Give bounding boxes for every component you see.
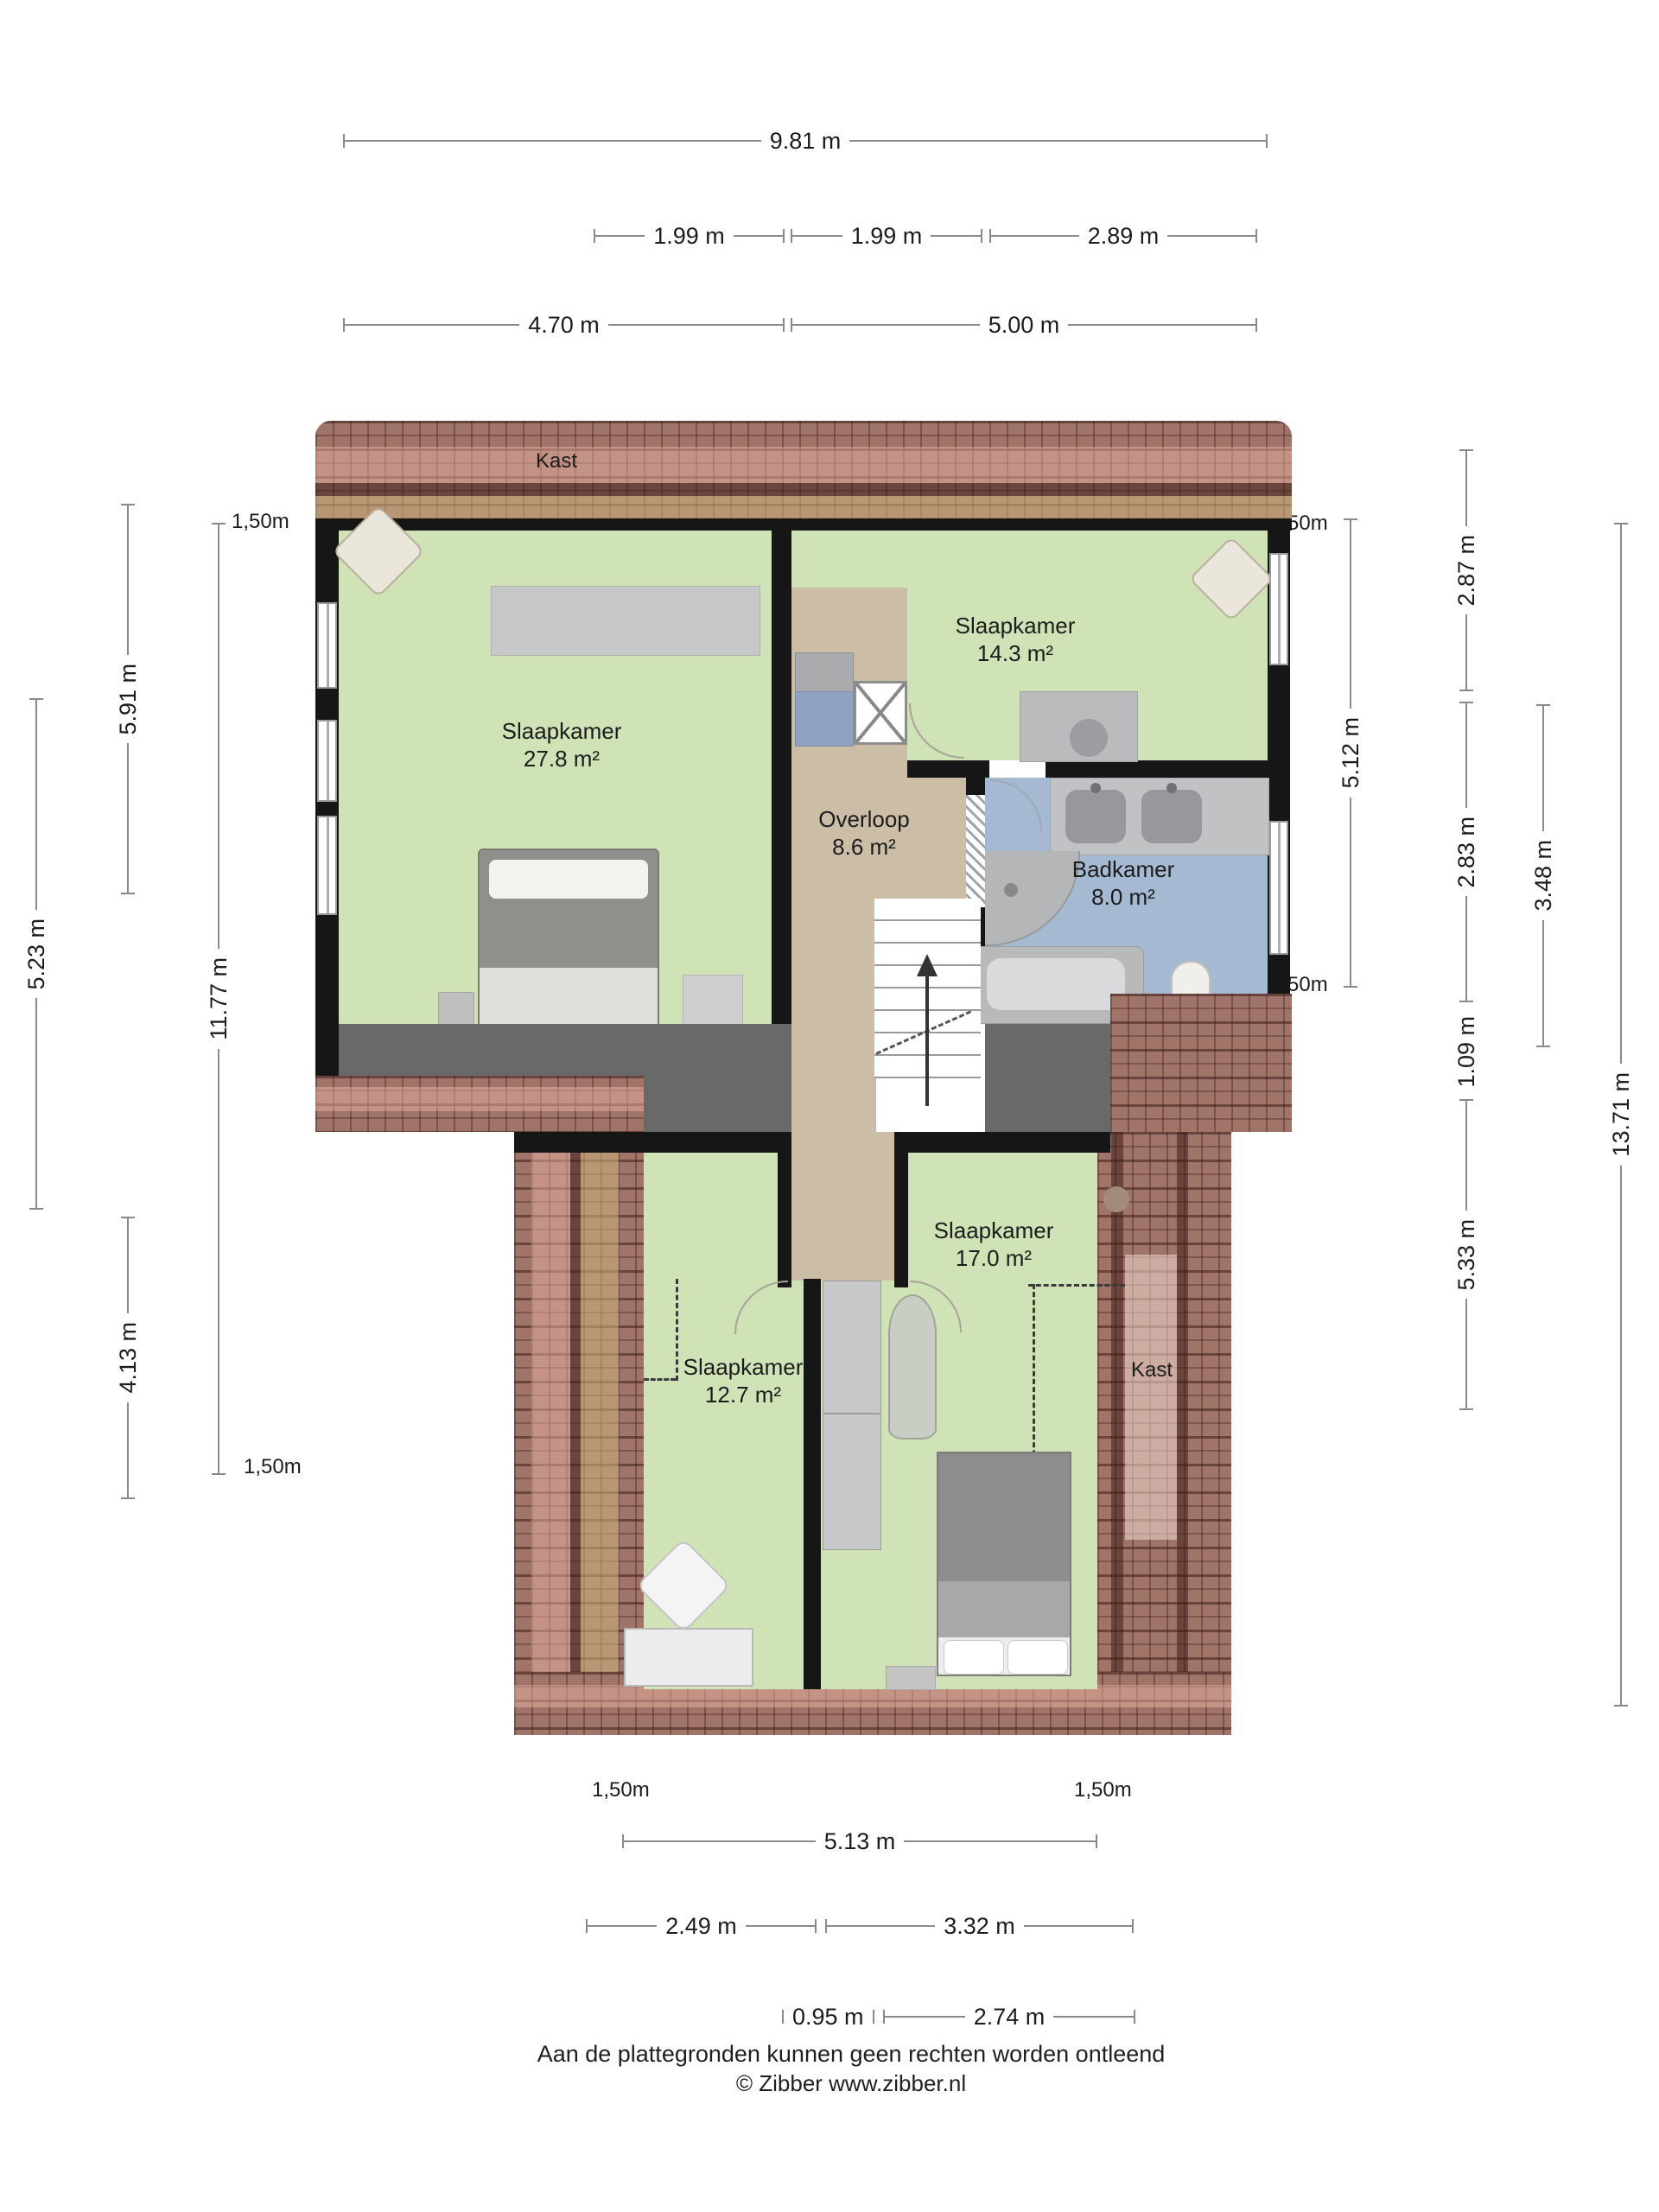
roof-stripe — [315, 483, 1292, 496]
dim-line — [1465, 896, 1467, 1001]
dim-tick — [1134, 2010, 1135, 2024]
dim-line — [1053, 2016, 1134, 2018]
dim-tick — [873, 2010, 874, 2024]
room-label-bedroom-bottom-right: Slaapkamer 17.0 m² — [890, 1217, 1097, 1272]
dim-line — [1465, 1299, 1467, 1408]
dim-label: 5.91 m — [115, 655, 142, 744]
wardrobe — [823, 1281, 881, 1550]
room-label-landing: Overloop 8.6 m² — [778, 805, 950, 861]
sink-left — [1065, 790, 1126, 843]
dim-label: 2.89 m — [1079, 223, 1168, 250]
landing-corridor — [791, 1132, 894, 1281]
room-name: Slaapkamer — [912, 612, 1119, 639]
dim-bottom-3-32: 3.32 m — [825, 1913, 1134, 1939]
room-area: 12.7 m² — [639, 1381, 847, 1408]
roof-stripe — [531, 1132, 570, 1735]
dim-label: 9.81 m — [761, 128, 850, 155]
dim-label: 1.99 m — [842, 223, 931, 250]
dim-line — [127, 743, 129, 893]
dim-right-2-87: 2.87 m — [1452, 449, 1481, 691]
dim-tick — [1459, 1001, 1473, 1002]
roof-window-crank-icon — [1103, 1186, 1129, 1212]
dim-tick — [981, 229, 982, 243]
dim-label: 5.33 m — [1453, 1211, 1480, 1300]
shower-drain-icon — [1004, 883, 1018, 897]
dim-label: 5.13 m — [816, 1828, 905, 1855]
dim-bottom-0-95: 0.95 m — [782, 2004, 877, 2030]
dim-top-seg3: 2.89 m — [989, 223, 1257, 249]
dim-line — [127, 505, 129, 655]
dim-line — [1542, 920, 1544, 1046]
dim-right-5-12: 5.12 m — [1336, 518, 1365, 988]
dim-label: 2.83 m — [1453, 808, 1480, 897]
dim-tick — [815, 1919, 817, 1933]
dim-line — [345, 324, 519, 326]
stairs-direction-arrow-stem — [925, 975, 929, 1106]
bed-pillow — [489, 860, 648, 899]
wall-bedroom-large-right — [772, 531, 791, 1024]
footer-disclaimer: Aan de plattegronden kunnen geen rechten… — [22, 2041, 1659, 2068]
footer-copyright: © Zibber www.zibber.nl — [22, 2070, 1659, 2097]
room-label-bathroom: Badkamer 8.0 m² — [1037, 855, 1210, 911]
dim-tick — [121, 1497, 135, 1499]
dim-label: 13.71 m — [1608, 1064, 1635, 1166]
dim-line — [1024, 1925, 1132, 1927]
closet-right-area — [1125, 1255, 1177, 1540]
dim-left-4-13: 4.13 m — [113, 1217, 143, 1499]
room-name: Slaapkamer — [639, 1353, 847, 1381]
dim-line — [1620, 524, 1622, 1064]
dim-left-5-23: 5.23 m — [22, 698, 51, 1210]
dim-tick — [1459, 1408, 1473, 1410]
dim-label: 2.49 m — [657, 1913, 746, 1940]
dim-line — [1620, 1166, 1622, 1705]
roof-stripe — [315, 1087, 644, 1111]
dim-label: 3.32 m — [935, 1913, 1024, 1940]
room-area: 14.3 m² — [912, 639, 1119, 667]
dim-line — [218, 1049, 219, 1473]
wall-landing-top — [907, 760, 989, 778]
cabinet-blue — [795, 691, 854, 747]
wall-bedroom-divider — [804, 1279, 821, 1689]
dim-line — [595, 235, 645, 237]
room-name: Overloop — [778, 805, 950, 833]
room-name: Badkamer — [1037, 855, 1210, 883]
roof-band-mid-right — [1110, 994, 1292, 1132]
dim-line — [1465, 614, 1467, 690]
desk-chair — [1070, 719, 1108, 757]
dim-line — [1465, 451, 1467, 526]
dim-line — [1068, 324, 1255, 326]
dim-tick — [1344, 986, 1357, 988]
bed-pillow — [1007, 1640, 1068, 1675]
dim-line — [904, 1840, 1096, 1842]
dim-line — [624, 1840, 816, 1842]
dim-label: 5.00 m — [980, 312, 1069, 339]
clearance-dash — [1028, 1284, 1125, 1287]
room-area: 17.0 m² — [890, 1244, 1097, 1272]
dim-label: 2.74 m — [965, 2004, 1054, 2031]
window-left-2 — [317, 720, 337, 802]
ironing-board — [888, 1294, 937, 1440]
bathtub-inner — [987, 958, 1125, 1010]
dim-line — [1350, 520, 1351, 709]
dim-bottom-2-49: 2.49 m — [586, 1913, 817, 1939]
dim-label: 0.95 m — [784, 2004, 873, 2031]
dim-line — [345, 140, 761, 142]
bed-pillow — [944, 1640, 1004, 1675]
dim-line — [885, 2016, 965, 2018]
dim-left-11-77: 11.77 m — [204, 523, 233, 1475]
dim-right-1-09: 1.09 m — [1452, 1007, 1481, 1094]
desk-white — [624, 1628, 753, 1687]
roof-stripe — [1177, 1132, 1188, 1735]
dim-tick — [783, 229, 785, 243]
room-label-kast-top: Kast — [518, 448, 595, 475]
roof-window-icon — [854, 681, 907, 745]
dim-bottom-5-13: 5.13 m — [622, 1828, 1097, 1854]
dim-line — [734, 235, 783, 237]
dim-line — [1465, 1101, 1467, 1211]
clearance-label-bottom-right: 1,50m — [1074, 1778, 1132, 1802]
wall-corridor-left — [778, 1132, 791, 1287]
dim-line — [849, 140, 1266, 142]
roof-stripe — [581, 1132, 619, 1735]
dim-line — [1542, 706, 1544, 831]
room-area: 27.8 m² — [458, 745, 665, 772]
dim-top-seg1: 1.99 m — [594, 223, 785, 249]
dim-line — [588, 1925, 657, 1927]
dim-line — [127, 1218, 129, 1313]
stairs-direction-arrow-icon — [917, 954, 938, 976]
dim-top-seg2: 1.99 m — [791, 223, 982, 249]
dim-bottom-2-74: 2.74 m — [883, 2004, 1135, 2030]
dim-line — [127, 1402, 129, 1497]
room-area: 8.0 m² — [1037, 883, 1210, 911]
window-left-3 — [317, 816, 337, 915]
dim-tick — [783, 318, 785, 332]
dim-tick — [1132, 1919, 1134, 1933]
room-name: Slaapkamer — [890, 1217, 1097, 1244]
dim-right-2-83: 2.83 m — [1452, 702, 1481, 1002]
dim-label: 11.77 m — [206, 949, 232, 1049]
dim-line — [746, 1925, 815, 1927]
clearance-label-left-bottom: 1,50m — [244, 1455, 302, 1479]
roof-stripe — [570, 1132, 581, 1735]
window-right-2 — [1269, 821, 1288, 955]
roof-stripe — [1111, 1132, 1123, 1735]
dim-right-13-71: 13.71 m — [1606, 523, 1636, 1707]
wall — [315, 518, 1292, 531]
room-label-kast-right: Kast — [1123, 1357, 1180, 1384]
room-area: 8.6 m² — [778, 833, 950, 861]
shaft-hatch — [966, 795, 985, 907]
wardrobe-split — [823, 1413, 880, 1414]
room-landing-column — [791, 899, 874, 1132]
dim-tick — [1255, 318, 1257, 332]
roof-stripe — [315, 447, 1292, 483]
window-left-1 — [317, 602, 337, 689]
wall-bottom-block-top-left — [514, 1132, 778, 1153]
dim-tick — [1255, 229, 1257, 243]
dim-line — [1167, 235, 1255, 237]
dim-right-3-48: 3.48 m — [1529, 704, 1558, 1047]
dim-left-5-91: 5.91 m — [113, 504, 143, 894]
dim-line — [218, 524, 219, 949]
dim-tick — [1096, 1834, 1097, 1848]
dim-label: 5.12 m — [1338, 709, 1364, 798]
dim-top-total: 9.81 m — [343, 128, 1268, 154]
rug — [683, 975, 743, 1028]
dim-tick — [1266, 134, 1268, 148]
sink-right — [1141, 790, 1202, 843]
room-label-bedroom-large: Slaapkamer 27.8 m² — [458, 717, 665, 772]
clearance-label-left-top: 1,50m — [232, 510, 289, 534]
dim-tick — [1614, 1705, 1628, 1707]
dim-line — [931, 235, 981, 237]
dim-tick — [212, 1473, 226, 1475]
dim-label: 1.99 m — [645, 223, 734, 250]
dim-line — [1350, 798, 1351, 986]
cabinet — [795, 652, 854, 693]
dim-tick — [29, 1208, 43, 1210]
room-label-bedroom-bottom-left: Slaapkamer 12.7 m² — [639, 1353, 847, 1408]
dim-label: 4.70 m — [519, 312, 608, 339]
dim-line — [792, 324, 980, 326]
dim-label: 3.48 m — [1530, 831, 1557, 920]
dim-line — [35, 998, 37, 1208]
dim-line — [1465, 703, 1467, 808]
dim-label: 5.23 m — [23, 910, 50, 999]
dim-line — [608, 324, 783, 326]
dim-tick — [1459, 690, 1473, 691]
dim-top-right-half: 5.00 m — [791, 312, 1257, 338]
dim-tick — [1536, 1046, 1550, 1047]
dim-line — [827, 1925, 935, 1927]
window-right-1 — [1269, 553, 1288, 665]
dead-space-right — [985, 1024, 1110, 1132]
dim-right-5-33: 5.33 m — [1452, 1099, 1481, 1410]
room-name: Slaapkamer — [458, 717, 665, 745]
dim-label: 4.13 m — [115, 1313, 142, 1402]
dim-line — [35, 700, 37, 910]
desk-long — [491, 586, 760, 656]
wall-bathroom-top — [1046, 760, 1268, 778]
wall-bottom-block-top-right — [908, 1132, 1110, 1153]
dim-line — [991, 235, 1079, 237]
faucet-icon — [1166, 783, 1177, 793]
clearance-label-bottom-left: 1,50m — [592, 1778, 650, 1802]
room-label-bedroom-top-right: Slaapkamer 14.3 m² — [912, 612, 1119, 667]
floor-plan-page: 9.81 m 1.99 m 1.99 m 2.89 m 4.70 m 5.00 … — [0, 0, 1659, 2212]
dim-tick — [121, 893, 135, 894]
dim-top-left-half: 4.70 m — [343, 312, 785, 338]
bench — [886, 1666, 936, 1690]
faucet-icon — [1090, 783, 1101, 793]
dim-label: 2.87 m — [1453, 526, 1480, 615]
bed-small-mid — [938, 1581, 1070, 1637]
dim-label: 1.09 m — [1453, 1007, 1480, 1096]
dim-line — [792, 235, 842, 237]
